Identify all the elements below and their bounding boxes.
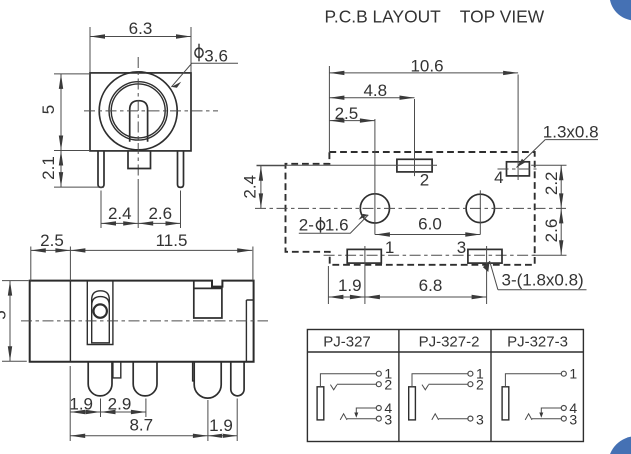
svg-text:1.9: 1.9 <box>69 394 93 413</box>
svg-text:2.1: 2.1 <box>39 156 58 180</box>
svg-text:5: 5 <box>0 310 10 319</box>
svg-text:TOP VIEW: TOP VIEW <box>460 7 545 27</box>
svg-text:PJ-327: PJ-327 <box>323 334 371 351</box>
svg-text:2.4: 2.4 <box>240 175 259 199</box>
svg-text:2.4: 2.4 <box>108 204 132 223</box>
svg-text:8.7: 8.7 <box>129 416 153 435</box>
svg-text:2.5: 2.5 <box>335 104 359 123</box>
svg-text:11.5: 11.5 <box>156 231 188 250</box>
svg-text:PJ-327-3: PJ-327-3 <box>507 334 568 351</box>
svg-text:1.6: 1.6 <box>325 216 349 235</box>
svg-text:3: 3 <box>457 238 466 257</box>
svg-text:6.0: 6.0 <box>418 215 442 234</box>
svg-text:4: 4 <box>494 168 503 187</box>
svg-text:PJ-327-2: PJ-327-2 <box>419 334 480 351</box>
svg-text:2.6: 2.6 <box>542 219 561 243</box>
svg-text:2: 2 <box>476 376 484 392</box>
svg-text:2.6: 2.6 <box>148 204 172 223</box>
svg-text:2.9: 2.9 <box>108 394 132 413</box>
svg-text:1.9: 1.9 <box>209 416 233 435</box>
svg-text:3.6: 3.6 <box>204 47 228 66</box>
svg-text:3-(1.8x0.8): 3-(1.8x0.8) <box>502 270 584 289</box>
svg-text:1.3x0.8: 1.3x0.8 <box>543 122 599 141</box>
svg-text:2.2: 2.2 <box>542 171 561 195</box>
svg-text:2-: 2- <box>299 216 314 235</box>
svg-text:10.6: 10.6 <box>410 56 443 75</box>
svg-text:3: 3 <box>384 412 392 428</box>
svg-text:6.8: 6.8 <box>419 276 443 295</box>
svg-text:5: 5 <box>39 105 58 114</box>
svg-text:2: 2 <box>384 376 392 392</box>
svg-text:P.C.B LAYOUT: P.C.B LAYOUT <box>325 7 442 27</box>
svg-text:1: 1 <box>569 366 577 382</box>
svg-text:2.5: 2.5 <box>40 231 64 250</box>
svg-text:3: 3 <box>476 412 484 428</box>
svg-text:1.9: 1.9 <box>338 276 362 295</box>
svg-text:6.3: 6.3 <box>129 19 153 38</box>
svg-text:2: 2 <box>420 170 429 189</box>
svg-text:1: 1 <box>385 238 394 257</box>
svg-text:3: 3 <box>569 412 577 428</box>
svg-text:4.8: 4.8 <box>363 81 387 100</box>
